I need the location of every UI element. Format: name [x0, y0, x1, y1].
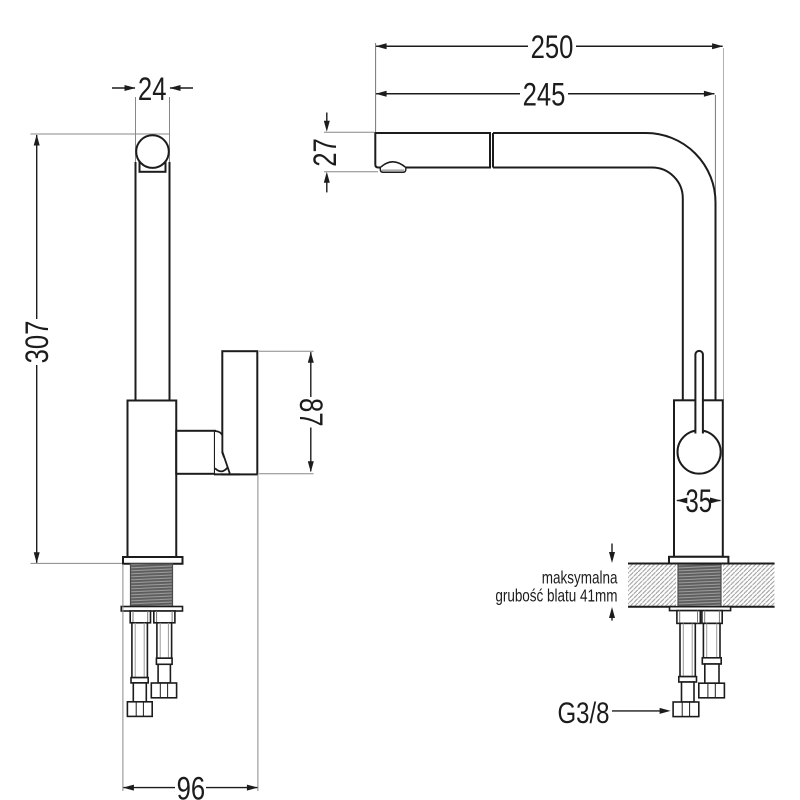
svg-text:27: 27 [307, 138, 344, 167]
svg-text:maksymalna: maksymalna [542, 569, 618, 588]
svg-text:35: 35 [685, 484, 712, 520]
svg-text:87: 87 [292, 398, 329, 427]
svg-text:grubość blatu 41mm: grubość blatu 41mm [495, 587, 617, 606]
svg-text:245: 245 [523, 77, 566, 114]
svg-text:250: 250 [531, 29, 574, 66]
svg-text:G3/8: G3/8 [558, 695, 610, 729]
svg-text:96: 96 [177, 771, 206, 800]
svg-text:24: 24 [138, 71, 167, 108]
svg-text:307: 307 [19, 321, 56, 364]
